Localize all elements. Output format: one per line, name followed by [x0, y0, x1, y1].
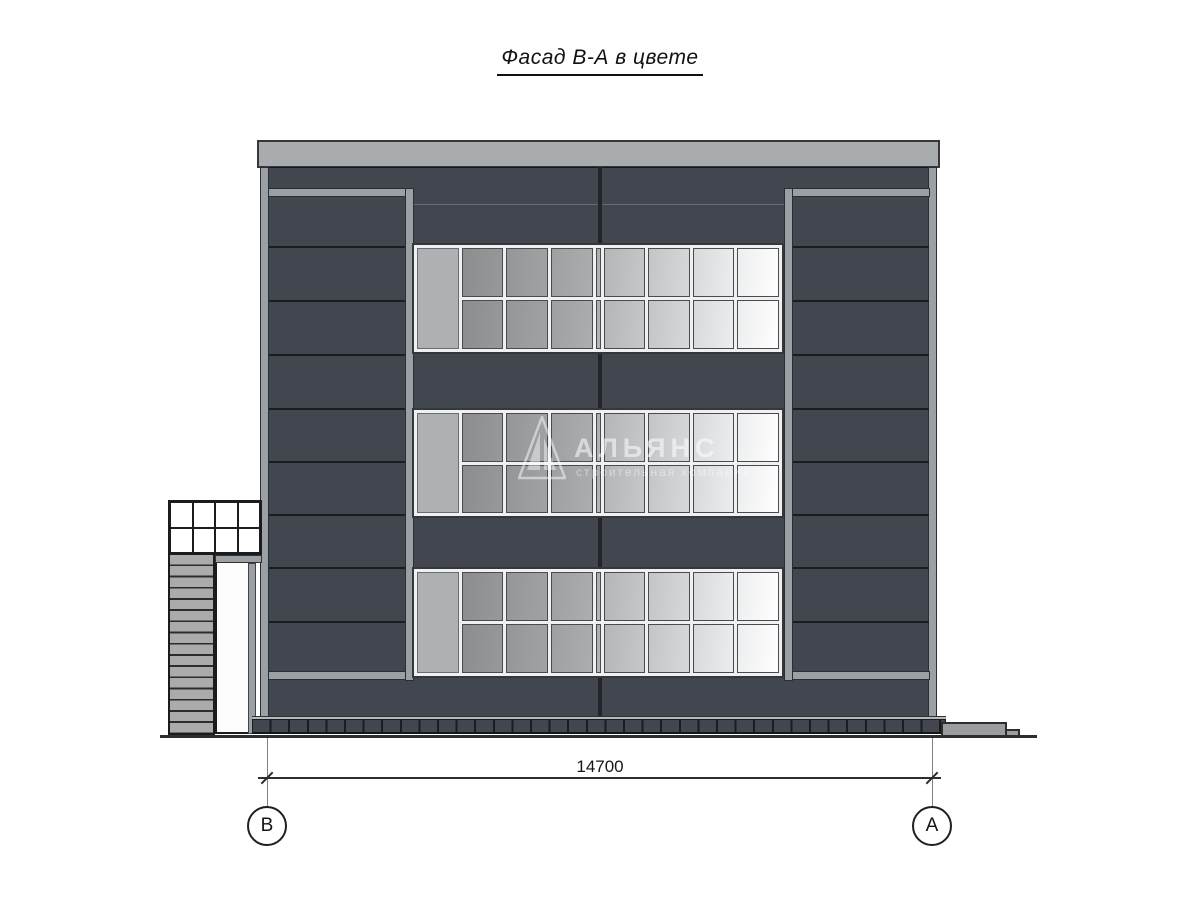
- panel-seam-line: [793, 514, 929, 516]
- panel-seam-line: [793, 621, 929, 623]
- window-cell: [648, 465, 690, 514]
- window-cell: [648, 300, 690, 349]
- ground-line: [160, 735, 1037, 738]
- pilaster-right: [928, 167, 937, 718]
- window-center-spacer: [417, 572, 459, 673]
- page-title: Фасад В-А в цвете: [497, 46, 702, 76]
- window-cell: [596, 572, 601, 621]
- panel-seam-line: [793, 408, 929, 410]
- trim-band-bottom-left: [268, 671, 414, 680]
- window-cell: [737, 300, 779, 349]
- window-cell: [693, 572, 735, 621]
- window-cell: [604, 465, 646, 514]
- canopy-cell: [215, 502, 238, 528]
- canopy-cell: [170, 528, 193, 554]
- window-cell: [648, 624, 690, 673]
- plinth-band: [252, 719, 946, 734]
- window-cell: [604, 300, 646, 349]
- window-cell: [506, 248, 548, 297]
- window-cell: [648, 572, 690, 621]
- window-cell: [693, 413, 735, 462]
- window-cell: [506, 300, 548, 349]
- window-cell: [506, 624, 548, 673]
- panel-seam-line: [793, 246, 929, 248]
- roof-cap: [257, 140, 940, 168]
- window-cell: [462, 248, 504, 297]
- stair-canopy-grid: [168, 500, 262, 555]
- window-cell: [596, 465, 601, 514]
- panel-seam-line: [269, 246, 405, 248]
- window-cell: [551, 465, 593, 514]
- window-cell: [462, 300, 504, 349]
- window-cell: [693, 300, 735, 349]
- panel-seam-line: [793, 300, 929, 302]
- window-cell: [462, 413, 504, 462]
- axis-circle-a: А: [912, 806, 952, 846]
- mullion-right: [784, 188, 793, 681]
- window-cell: [462, 624, 504, 673]
- window-cell: [551, 413, 593, 462]
- canopy-cell: [170, 502, 193, 528]
- window-cell: [648, 413, 690, 462]
- window-cell: [604, 572, 646, 621]
- panel-seam-line: [793, 567, 929, 569]
- trim-band-bottom-right: [784, 671, 930, 680]
- window-cell: [737, 572, 779, 621]
- window-cell: [596, 413, 601, 462]
- window-cell: [693, 624, 735, 673]
- window-center-spacer: [417, 248, 459, 349]
- dimension-line: [258, 777, 941, 779]
- window-cell: [693, 248, 735, 297]
- window-cell: [551, 300, 593, 349]
- door-side-trim: [248, 563, 256, 734]
- stair-louver-panel: [168, 555, 215, 735]
- canopy-cell: [193, 502, 216, 528]
- trim-band-top-right: [784, 188, 930, 197]
- panel-seam-line: [269, 514, 405, 516]
- window-cell: [551, 624, 593, 673]
- canopy-cell: [238, 502, 261, 528]
- canopy-cell: [215, 528, 238, 554]
- panel-seam-line: [602, 204, 784, 205]
- window-cell: [506, 413, 548, 462]
- window-cell: [737, 624, 779, 673]
- entrance-door: [215, 563, 248, 734]
- window-cell: [604, 248, 646, 297]
- panel-seam-line: [414, 204, 598, 205]
- facade-drawing-canvas: Фасад В-А в цвете АЛЬЯНС строительная ко…: [0, 0, 1200, 900]
- panel-seam-line: [269, 354, 405, 356]
- window-cell: [596, 300, 601, 349]
- window-cell: [551, 572, 593, 621]
- window-cell: [604, 624, 646, 673]
- window-cell: [737, 248, 779, 297]
- trim-band-top-left: [268, 188, 414, 197]
- pilaster-left: [260, 167, 269, 718]
- window-band: [412, 408, 784, 518]
- panel-seam-line: [269, 621, 405, 623]
- window-cell: [737, 413, 779, 462]
- door-lintel: [215, 555, 262, 563]
- window-cell: [604, 413, 646, 462]
- window-cell: [462, 572, 504, 621]
- title-block: Фасад В-А в цвете: [0, 46, 1200, 76]
- window-cell: [596, 248, 601, 297]
- panel-seam-line: [793, 354, 929, 356]
- panel-seam-line: [793, 461, 929, 463]
- dimension-label: 14700: [576, 757, 623, 777]
- axis-label-b: В: [261, 815, 274, 837]
- window-cell: [462, 465, 504, 514]
- window-cell: [506, 465, 548, 514]
- window-cell: [596, 624, 601, 673]
- window-cell: [551, 248, 593, 297]
- panel-seam-line: [269, 461, 405, 463]
- window-cell: [737, 465, 779, 514]
- panel-seam-line: [269, 300, 405, 302]
- axis-circle-b: В: [247, 806, 287, 846]
- window-center-spacer: [417, 413, 459, 513]
- window-band: [412, 567, 784, 678]
- extension-line-b: [267, 738, 268, 808]
- extension-line-a: [932, 738, 933, 808]
- window-cell: [506, 572, 548, 621]
- panel-seam-line: [269, 408, 405, 410]
- window-band: [412, 243, 784, 354]
- canopy-cell: [238, 528, 261, 554]
- window-cell: [693, 465, 735, 514]
- window-cell: [648, 248, 690, 297]
- axis-label-a: А: [926, 815, 939, 837]
- canopy-cell: [193, 528, 216, 554]
- panel-seam-line: [269, 567, 405, 569]
